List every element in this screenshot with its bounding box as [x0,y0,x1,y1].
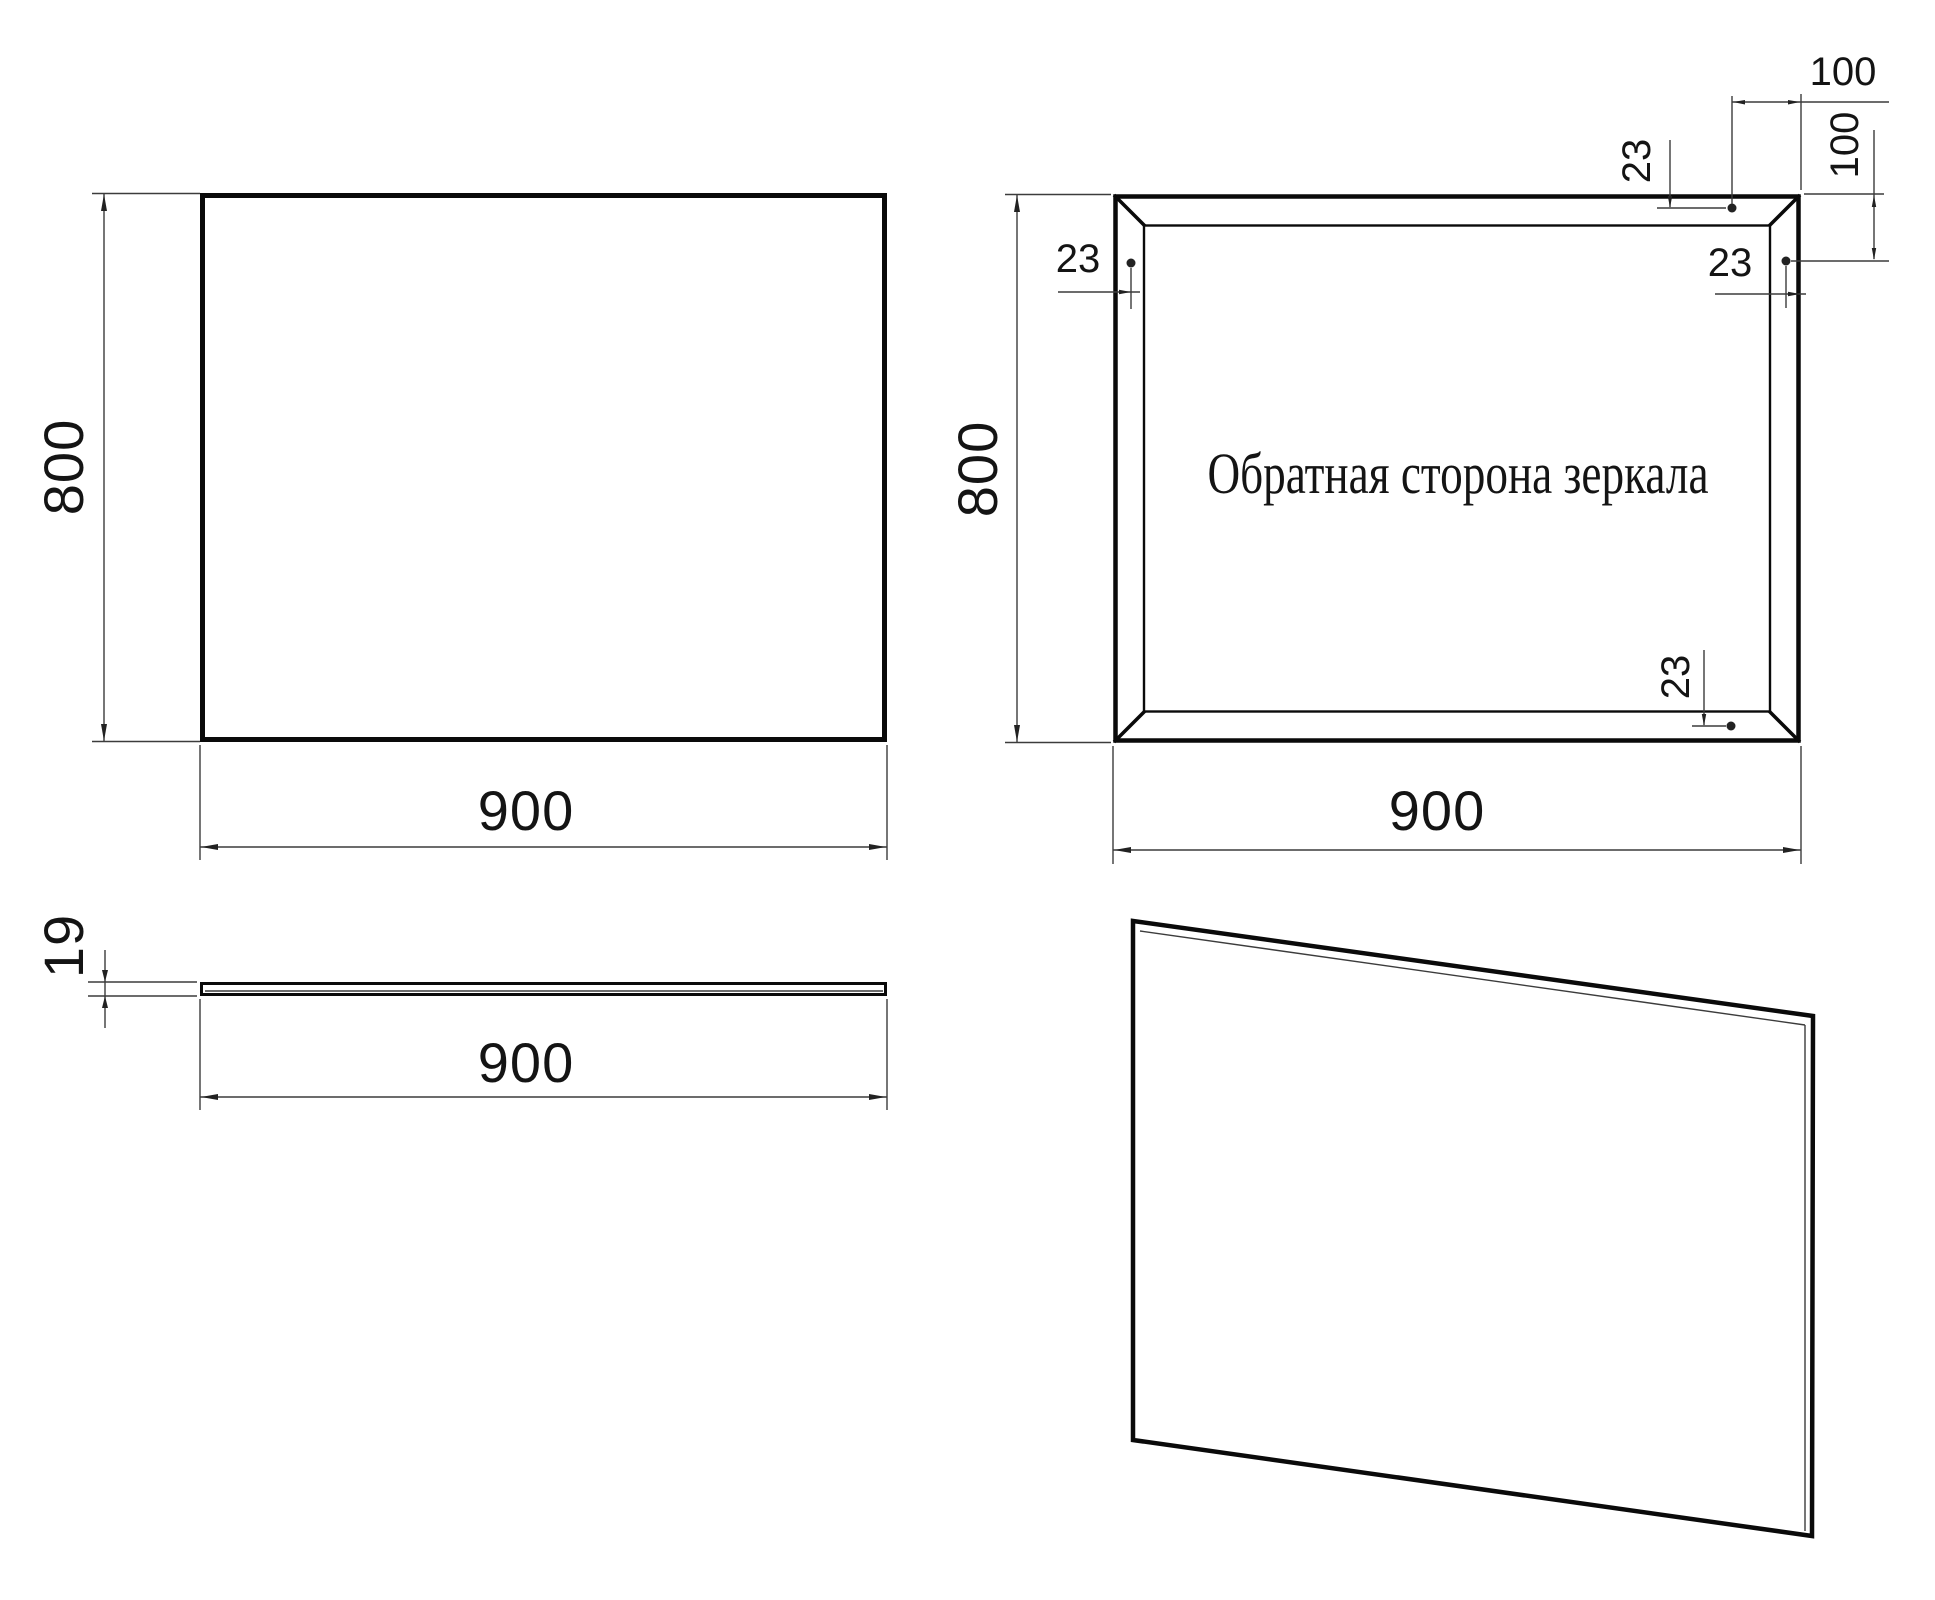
back-side-note: Обратная сторона зеркала [1207,445,1708,503]
front-view [92,194,887,861]
drawing-linework [0,0,1935,1600]
mounting-point-right [1782,257,1791,266]
left-point-offset-label: 23 [1056,239,1101,279]
right-point-inset-label: 100 [1825,112,1865,179]
mounting-point-bottom [1727,722,1736,731]
bottom-point-offset-label: 23 [1656,655,1696,700]
right-point-offset-label: 23 [1708,243,1753,283]
back-height-label: 800 [950,421,1006,517]
mirror-technical-drawing: 800 900 19 900 800 900 Обратная сторона … [0,0,1935,1600]
mounting-point-left [1127,259,1136,268]
front-height-label: 800 [36,419,92,515]
front-height-dimension [92,194,200,742]
perspective-outline [1133,921,1813,1536]
front-view-outline [203,196,885,740]
side-width-label: 900 [478,1035,574,1091]
side-view-outline [202,984,886,995]
side-thickness-dimension [88,950,197,1028]
top-point-inset-label: 100 [1810,52,1877,92]
front-width-label: 900 [478,783,574,839]
side-thickness-label: 19 [36,914,92,978]
mounting-point-top [1728,204,1737,213]
back-width-label: 900 [1389,783,1485,839]
perspective-view [1133,921,1813,1536]
top-point-offset-label: 23 [1617,139,1657,184]
